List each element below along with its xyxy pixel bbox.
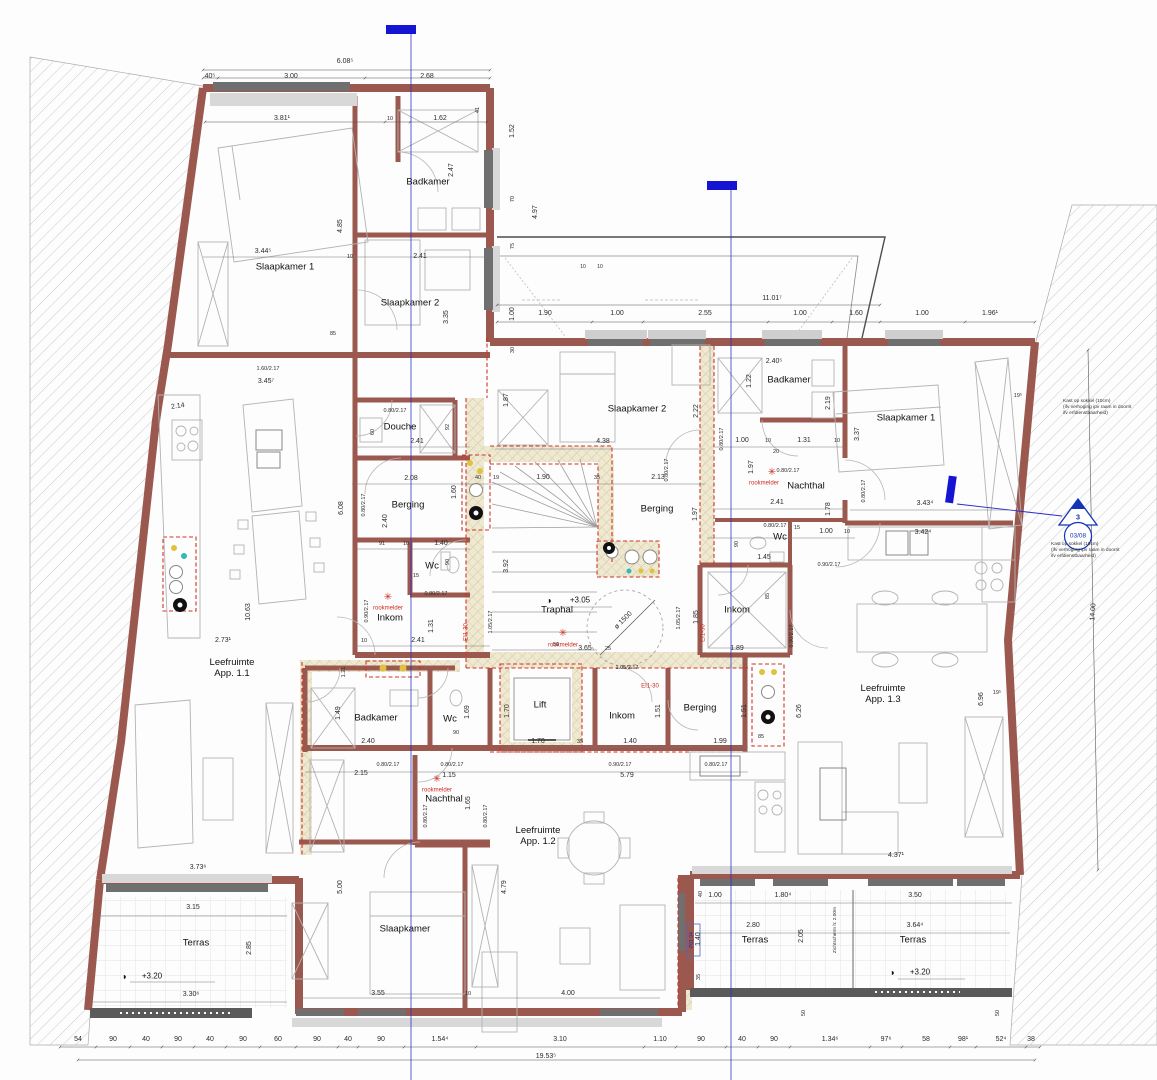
dim: 20 — [773, 449, 779, 455]
dim: 4.97 — [532, 205, 540, 219]
dim: 15 — [413, 573, 419, 579]
dim: 1.51 — [741, 704, 749, 718]
dim: 4.38 — [596, 438, 610, 446]
room-label-wc-app11: Wc — [425, 560, 439, 571]
room-label-terras-left: Terras — [183, 937, 209, 948]
room-label-slaapkamer2-app11: Slaapkamer 2 — [381, 297, 440, 308]
dim: 50 — [801, 1010, 807, 1016]
room-label-berging-core: Berging — [684, 702, 717, 713]
dim: 3.65 — [578, 645, 592, 653]
dim: 0.80/2.17 — [361, 494, 367, 517]
dim: 1.96¹ — [982, 310, 998, 318]
dim: 2.47 — [448, 163, 456, 177]
dim: 2.41 — [410, 438, 424, 446]
dim: 3.15 — [186, 904, 200, 912]
dim: 6.08 — [338, 501, 346, 515]
room-label-inkom-app11: Inkom — [377, 612, 403, 623]
dim: 35 — [696, 974, 702, 980]
dim: 1.40 — [434, 540, 448, 548]
level-marker-icon: ◑ — [889, 968, 894, 979]
room-label-badkamer-app13: Badkamer — [767, 374, 810, 385]
dim: 85 — [765, 593, 771, 599]
dim: 1.00 — [610, 310, 624, 318]
annotation-kast-1: Kast op sokkel (10cm) (ifv verhoging ipv… — [1063, 399, 1132, 417]
dim: 4.85 — [337, 219, 345, 233]
dim: 1.85 — [693, 610, 701, 624]
room-label-douche: Douche — [384, 421, 417, 432]
dim: 4.79 — [501, 880, 509, 894]
dim: 1.40 — [695, 932, 703, 946]
dim: 41 — [475, 107, 481, 113]
fire-rating-label: EI1-30 — [463, 623, 470, 641]
fire-rating-label: EI1-30 — [700, 624, 707, 642]
dim: 1.80⁴ — [775, 892, 792, 900]
dim: 2.22 — [693, 404, 701, 418]
dim: 1.31 — [428, 619, 436, 633]
dim: 0.80/2.17 — [705, 762, 728, 768]
dim: 2.80 — [746, 922, 760, 930]
room-label-leefruimte-app12: Leefruimte App. 1.2 — [516, 825, 561, 847]
dim: 97⁶ — [881, 1036, 892, 1044]
dim: 52⁴ — [996, 1036, 1007, 1044]
dim: 1.05/2.17 — [488, 611, 494, 634]
room-label-inkom-app13: Inkom — [724, 604, 750, 615]
dim: 10.63 — [245, 603, 253, 621]
dim: 38 — [1027, 1036, 1035, 1044]
fire-rating-label: EI1-30 — [641, 683, 659, 690]
dim: 10 — [765, 438, 771, 444]
level-marker-icon: ◑ — [546, 596, 551, 607]
dim: 1.54⁴ — [432, 1036, 449, 1044]
dim: 2.40⁵ — [766, 358, 783, 366]
dim: 1.00 — [735, 437, 749, 445]
dim: 6.96 — [978, 692, 986, 706]
dim: 2.13 — [651, 474, 665, 482]
rookmelder-icon: ✳ — [433, 774, 441, 786]
dim: 90 — [174, 1036, 182, 1044]
dim: 30 — [510, 347, 516, 353]
dim: 1.70 — [504, 704, 512, 718]
dim: 91 — [379, 541, 385, 547]
dim: 0.90/2.17 — [818, 562, 841, 568]
annotation-kast-2: Kast op sokkel (10cm) (ifv verhoging ipv… — [1051, 542, 1120, 560]
dim: 90 — [770, 1036, 778, 1044]
dim: 3.10 — [553, 1036, 567, 1044]
dim: 1.05/2.17 — [676, 607, 682, 630]
dim: 90 — [445, 559, 451, 565]
dim: 2.15 — [354, 770, 368, 778]
dim: 0.80/2.17 — [719, 428, 725, 451]
dim: 1.52 — [509, 124, 517, 138]
dim: 0.80/2.17 — [664, 459, 670, 482]
dim: 2.05 — [798, 929, 806, 943]
dim: 6.08⁵ — [337, 58, 354, 66]
dim: 40 — [142, 1036, 150, 1044]
dim: 2.40 — [361, 738, 375, 746]
level-marker-icon: ◑ — [121, 972, 126, 983]
room-label-slaapkamer1-app11: Slaapkamer 1 — [256, 261, 315, 272]
dim: 90 — [453, 730, 459, 736]
dim: 2.14 — [171, 402, 186, 412]
dim: 3.30⁶ — [183, 991, 200, 999]
dim: 50 — [553, 642, 559, 648]
dim: 0.80/2.17 — [425, 591, 448, 597]
labels-layer: Slaapkamer 1BadkamerSlaapkamer 2DoucheBe… — [0, 0, 1157, 1080]
dim: 10 — [403, 541, 409, 547]
door-code-label: P01.04 — [690, 932, 696, 948]
rookmelder-icon: ✳ — [384, 592, 392, 604]
room-label-berging-app11: Berging — [392, 499, 425, 510]
dim: 90 — [109, 1036, 117, 1044]
dim: 3.42⁴ — [915, 529, 932, 537]
dim: 1.60 — [849, 310, 863, 318]
dim: 1.90 — [538, 310, 552, 318]
dim: 35 — [577, 739, 583, 745]
dim: 2.41 — [413, 253, 427, 261]
room-label-wc-app12: Wc — [443, 713, 457, 724]
dim: 1.51 — [655, 704, 663, 718]
dim: 40 — [738, 1036, 746, 1044]
dim: 0.80/2.17 — [423, 805, 429, 828]
rookmelder-icon: ✳ — [559, 628, 567, 640]
dim: 0.90/2.17 — [364, 600, 370, 623]
dim: 58 — [922, 1036, 930, 1044]
room-label-traphal: Traphal — [541, 604, 573, 615]
dim: 2.73¹ — [215, 637, 231, 645]
rookmelder-label: rookmelder — [373, 605, 403, 612]
rookmelder-label: rookmelder — [422, 787, 452, 794]
dim-overall: 19.53⁵ — [536, 1053, 556, 1061]
dim: 1.00 — [509, 307, 517, 321]
dim: 1.22 — [746, 374, 754, 388]
dim: 40 — [206, 1036, 214, 1044]
dim: 40 — [698, 891, 704, 897]
dim: 3.45⁷ — [258, 378, 274, 386]
dim: 60 — [370, 429, 376, 435]
dim: 92 — [445, 424, 451, 430]
dim: 1.60 — [451, 485, 459, 499]
dim: 90 — [377, 1036, 385, 1044]
dim: 2.41 — [770, 499, 784, 507]
dim: 3.81¹ — [274, 115, 290, 123]
dim: 3.73⁶ — [190, 864, 207, 872]
dim: ø 1500 — [613, 610, 634, 631]
dim: 2.40 — [382, 514, 390, 528]
dim: 1.00 — [793, 310, 807, 318]
room-label-nachthal-app12: Nachthal — [425, 793, 463, 804]
dim: 19 — [493, 475, 499, 481]
room-label-wc-app13: Wc — [773, 531, 787, 542]
dim: 1.90 — [536, 474, 550, 482]
dim: 90 — [734, 541, 740, 547]
room-label-badkamer-app12: Badkamer — [354, 712, 397, 723]
dim: 1.10 — [653, 1036, 667, 1044]
dim: 10 — [387, 116, 393, 122]
dim: 19⁵ — [1014, 393, 1022, 399]
dim: 1.70 — [531, 738, 545, 746]
dim: 85 — [758, 734, 764, 740]
room-label-lift: Lift — [534, 699, 547, 710]
dim: 1.89 — [730, 645, 744, 653]
dim: 1.87 — [503, 393, 511, 407]
dim: 60 — [274, 1036, 282, 1044]
dim: 10 — [465, 991, 471, 997]
dim: 1.78 — [825, 502, 833, 516]
dim: 10 — [361, 638, 367, 644]
dim: 0.80/2.17 — [384, 408, 407, 414]
dim: 1.45 — [757, 554, 771, 562]
dim: 3.00 — [284, 73, 298, 81]
dim: 0.80/2.17 — [861, 480, 867, 503]
dim: 70 — [510, 196, 516, 202]
dim: 2.85 — [246, 941, 254, 955]
dim: 6.26 — [796, 704, 804, 718]
dim: 0.90/2.17 — [609, 762, 632, 768]
rookmelder-label: rookmelder — [548, 642, 578, 649]
dim: 14.00 — [1089, 603, 1098, 621]
dim: 3.44⁵ — [255, 248, 272, 256]
room-label-slaapkamer-app12: Slaapkamer — [380, 923, 431, 934]
dim: 3.43⁴ — [917, 500, 934, 508]
room-label-slaapkamer2-app13: Slaapkamer 2 — [608, 403, 667, 414]
dim: 90 — [239, 1036, 247, 1044]
annotation-zichtscherm: Zichtscherm h: 2.00m — [833, 907, 839, 953]
dim: 1.65 — [465, 796, 473, 810]
dim: 50 — [995, 1010, 1001, 1016]
dim: 5.79 — [620, 772, 634, 780]
dim: 40 — [475, 475, 481, 481]
dim: 85 — [330, 331, 336, 337]
dim: 3.37 — [854, 427, 862, 441]
dim: 2.41 — [411, 637, 425, 645]
room-label-leefruimte-app11: Leefruimte App. 1.1 — [210, 657, 255, 679]
dim: 3.64⁴ — [907, 922, 924, 930]
dim: 4.37¹ — [888, 852, 904, 860]
dim: 40 — [344, 1036, 352, 1044]
dim: 2.08 — [404, 475, 418, 483]
room-label-inkom-core: Inkom — [609, 710, 635, 721]
dim: 1.00 — [915, 310, 929, 318]
dim: 25 — [605, 646, 611, 652]
dim: 1.99 — [713, 738, 727, 746]
floor-plan-canvas: Slaapkamer 1BadkamerSlaapkamer 2DoucheBe… — [0, 0, 1157, 1080]
dim: 0.80/2.17 — [377, 762, 400, 768]
dim: 2.19 — [825, 396, 833, 410]
dim: 10 — [347, 254, 353, 260]
dim: 0.80/2.17 — [483, 805, 489, 828]
dim: 1.97 — [692, 507, 700, 521]
rookmelder-label: rookmelder — [749, 480, 779, 487]
dim: 1.62 — [433, 115, 447, 123]
dim: 75 — [510, 243, 516, 249]
dim: 10 — [844, 529, 850, 535]
dim: 3.50 — [908, 892, 922, 900]
dim: 1.00 — [708, 892, 722, 900]
dim: 1.97 — [748, 460, 756, 474]
section-number: 3 — [1076, 513, 1080, 522]
room-label-terras-right: Terras — [900, 934, 926, 945]
room-label-berging-app13: Berging — [641, 503, 674, 514]
dim: 10 — [597, 265, 603, 271]
dim: 1.05/2.17 — [616, 665, 639, 671]
dim: 40⁵ — [205, 73, 216, 81]
dim: 10 — [580, 265, 586, 271]
room-label-terras-mid: Terras — [742, 934, 768, 945]
dim: 0.80/2.17 — [777, 468, 800, 474]
dim: 19⁵ — [993, 690, 1001, 696]
dim: 0.80/2.17 — [764, 523, 787, 529]
dim: 3.92 — [503, 559, 511, 573]
dim: 90 — [697, 1036, 705, 1044]
room-label-leefruimte-app13: Leefruimte App. 1.3 — [861, 683, 906, 705]
dim: 0.80/2.17 — [441, 762, 464, 768]
dim: 2.55 — [698, 310, 712, 318]
rookmelder-icon: ✳ — [768, 467, 776, 479]
dim: 1.60/2.17 — [257, 366, 280, 372]
dim: 98¹ — [958, 1036, 968, 1044]
dim: 1.69 — [464, 705, 472, 719]
dim: 1.40 — [623, 738, 637, 746]
level-value: +3.20 — [910, 967, 930, 976]
level-value: +3.20 — [142, 971, 162, 980]
dim: 0.90/2.17 — [789, 625, 795, 648]
dim: 54 — [74, 1036, 82, 1044]
dim: 3.35 — [443, 310, 451, 324]
dim: 5.00 — [337, 880, 345, 894]
dim: 35 — [594, 475, 600, 481]
dim: 10 — [834, 438, 840, 444]
dim: 15 — [794, 525, 800, 531]
dim: 1.49 — [335, 706, 343, 720]
room-label-badkamer-app11: Badkamer — [406, 176, 449, 187]
dim: 4.00 — [561, 990, 575, 998]
dim: 1.34⁶ — [822, 1036, 839, 1044]
room-label-nachthal-app13: Nachthal — [787, 480, 825, 491]
dim: 2.68 — [420, 73, 434, 81]
dim: 1.15 — [442, 772, 456, 780]
room-label-slaapkamer1-app13: Slaapkamer 1 — [877, 412, 936, 423]
dim: 11.01⁷ — [762, 295, 782, 303]
dim: 1.21 — [341, 667, 347, 678]
section-sheet: 03/08 — [1070, 533, 1086, 540]
dim: 3.55 — [371, 990, 385, 998]
level-value: +3.05 — [570, 595, 590, 604]
dim: 90 — [313, 1036, 321, 1044]
dim: 1.00 — [819, 528, 833, 536]
dim: 1.31 — [797, 437, 811, 445]
